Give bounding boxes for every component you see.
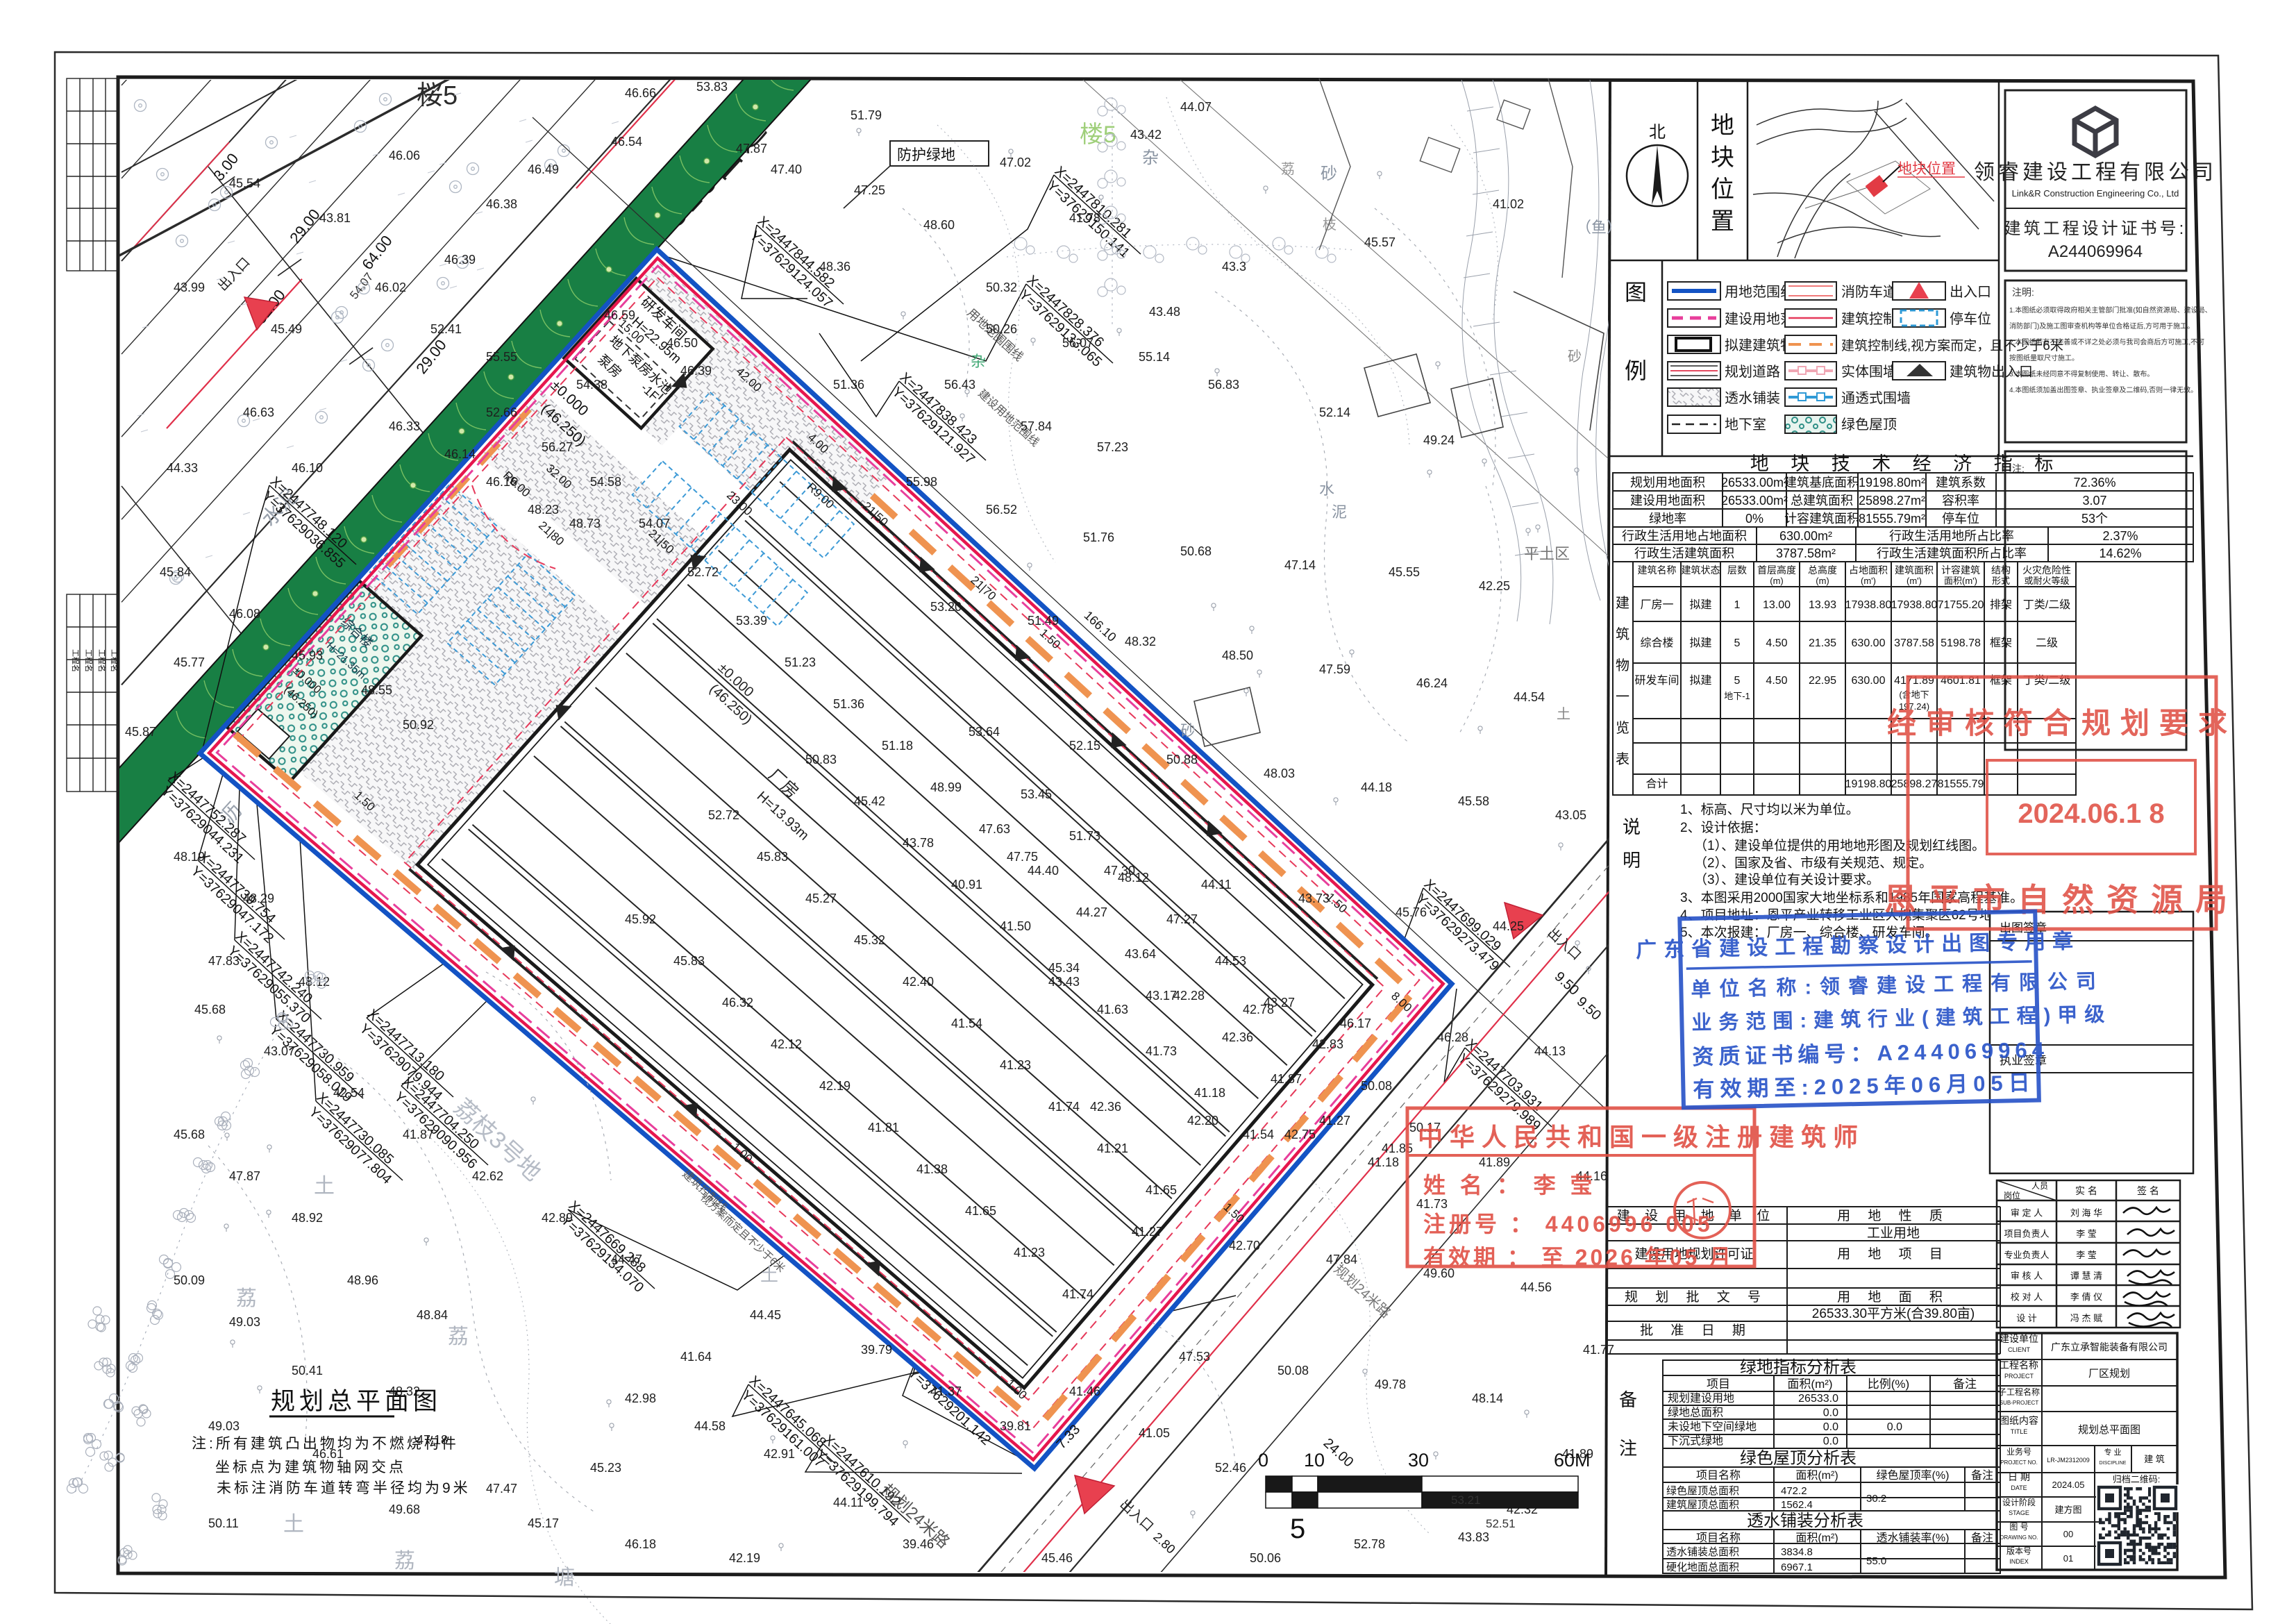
- svg-text:46.39: 46.39: [444, 253, 476, 267]
- svg-text:48.84: 48.84: [417, 1308, 448, 1322]
- svg-text:53.21: 53.21: [1451, 1493, 1481, 1507]
- svg-text:CLIENT: CLIENT: [2008, 1346, 2031, 1353]
- svg-text:41.87: 41.87: [1271, 1072, 1302, 1086]
- svg-text:面积(m²): 面积(m²): [1795, 1532, 1838, 1544]
- svg-text:43.07: 43.07: [264, 1044, 295, 1058]
- svg-text:45.92: 45.92: [625, 912, 656, 926]
- svg-text:1、标高、尺寸均以米为单位。: 1、标高、尺寸均以米为单位。: [1680, 802, 1859, 817]
- svg-text:26533.0: 26533.0: [1798, 1393, 1838, 1405]
- svg-text:绿色屋顶分析表: 绿色屋顶分析表: [1740, 1449, 1857, 1468]
- svg-text:版本号: 版本号: [2006, 1546, 2031, 1556]
- svg-text:广东立承智能装备有限公司: 广东立承智能装备有限公司: [2051, 1341, 2168, 1353]
- svg-text:消防车道: 消防车道: [1841, 284, 1897, 300]
- svg-text:46.28: 46.28: [1437, 1030, 1468, 1044]
- svg-text:55.55: 55.55: [486, 350, 517, 364]
- svg-text:42.19: 42.19: [819, 1079, 850, 1093]
- svg-text:57.84: 57.84: [1021, 419, 1052, 433]
- svg-text:45.84: 45.84: [160, 565, 191, 579]
- svg-text:枝: 枝: [1323, 217, 1336, 233]
- svg-text:10: 10: [1304, 1450, 1325, 1471]
- svg-text:计容建筑: 计容建筑: [1941, 564, 1980, 576]
- svg-text:3.07: 3.07: [2082, 494, 2106, 508]
- svg-text:未标注消防车道转弯半径均为9米: 未标注消防车道转弯半径均为9米: [217, 1480, 471, 1496]
- svg-text:56.43: 56.43: [944, 378, 975, 392]
- svg-text:14.62%: 14.62%: [2099, 546, 2141, 560]
- svg-text:47.75: 47.75: [1007, 850, 1038, 864]
- svg-text:泥: 泥: [1332, 503, 1347, 521]
- svg-text:55.98: 55.98: [906, 475, 937, 489]
- svg-text:43.99: 43.99: [174, 281, 205, 294]
- svg-text:通透式围墙: 通透式围墙: [1841, 390, 1911, 406]
- svg-text:50.11: 50.11: [208, 1516, 239, 1530]
- svg-text:4.50: 4.50: [1766, 675, 1787, 687]
- svg-text:630.00m²: 630.00m²: [1779, 529, 1832, 543]
- svg-text:42.12: 42.12: [771, 1037, 802, 1051]
- svg-text:荔: 荔: [394, 1550, 415, 1573]
- svg-text:48.12: 48.12: [1118, 871, 1149, 885]
- svg-text:43.64: 43.64: [1125, 947, 1156, 961]
- svg-text:面积(m²): 面积(m²): [1787, 1378, 1832, 1391]
- svg-text:46.39: 46.39: [680, 364, 712, 378]
- svg-text:50.41: 50.41: [292, 1364, 323, 1378]
- svg-text:48.92: 48.92: [292, 1211, 323, 1225]
- svg-text:42.28: 42.28: [1173, 989, 1205, 1003]
- svg-text:46.14: 46.14: [444, 447, 476, 461]
- svg-text:48.73: 48.73: [569, 517, 601, 530]
- svg-text:明: 明: [1623, 850, 1641, 871]
- svg-text:计容建筑面积: 计容建筑面积: [1784, 512, 1859, 526]
- svg-text:项目负责人: 项目负责人: [2004, 1229, 2049, 1239]
- svg-text:45.42: 45.42: [854, 794, 885, 808]
- svg-text:下沉式绿地: 下沉式绿地: [1668, 1435, 1723, 1448]
- svg-text:形式: 形式: [1992, 576, 2010, 586]
- svg-text:47.25: 47.25: [854, 183, 885, 197]
- svg-text:图: 图: [1625, 280, 1647, 305]
- svg-text:46.54: 46.54: [611, 135, 642, 149]
- svg-text:5198.78: 5198.78: [1941, 637, 1981, 649]
- svg-text:21.35: 21.35: [1809, 637, 1836, 649]
- svg-text:工程名称: 工程名称: [2000, 1359, 2038, 1371]
- svg-text:48.23: 48.23: [528, 503, 559, 517]
- svg-text:55.14: 55.14: [1139, 350, 1170, 364]
- svg-text:透水铺装率(%): 透水铺装率(%): [1877, 1532, 1950, 1544]
- svg-text:或耐火等级: 或耐火等级: [2024, 576, 2069, 586]
- svg-text:13.93: 13.93: [1809, 599, 1836, 611]
- svg-text:表: 表: [1616, 751, 1629, 767]
- svg-text:注: 注: [1619, 1438, 1637, 1459]
- svg-text:规 划 批 文 号: 规 划 批 文 号: [1625, 1289, 1768, 1305]
- svg-text:建筑系数: 建筑系数: [1936, 476, 1986, 489]
- svg-text:25898.27: 25898.27: [1891, 778, 1938, 790]
- svg-text:43.27: 43.27: [1264, 996, 1295, 1010]
- svg-text:44.07: 44.07: [1180, 100, 1212, 114]
- svg-text:厂房一: 厂房一: [1640, 598, 1673, 611]
- svg-text:(m'): (m'): [1861, 576, 1876, 586]
- svg-text:49.03: 49.03: [229, 1315, 260, 1329]
- svg-text:22.95: 22.95: [1809, 675, 1836, 687]
- svg-text:48.14: 48.14: [1472, 1391, 1503, 1405]
- svg-text:40.91: 40.91: [951, 878, 982, 891]
- svg-text:子工程名称: 子工程名称: [1998, 1387, 2040, 1397]
- svg-text:42.20: 42.20: [1187, 1114, 1218, 1128]
- svg-text:实体围墙: 实体围墙: [1841, 364, 1897, 380]
- svg-text:45.17: 45.17: [528, 1516, 559, 1530]
- svg-text:建设单位: 建设单位: [2000, 1333, 2038, 1344]
- svg-text:46.18: 46.18: [625, 1537, 656, 1551]
- svg-text:630.00: 630.00: [1852, 637, 1886, 649]
- svg-text:41.23: 41.23: [1000, 1058, 1031, 1072]
- svg-text:45.49: 45.49: [271, 322, 302, 336]
- svg-text:规划建设用地: 规划建设用地: [1668, 1392, 1734, 1405]
- svg-text:审 核 人: 审 核 人: [2011, 1271, 2043, 1281]
- svg-text:设 计: 设 计: [2016, 1313, 2037, 1323]
- svg-text:44.53: 44.53: [1215, 954, 1246, 968]
- svg-text:45.93: 45.93: [292, 648, 323, 662]
- svg-text:杂: 杂: [1142, 149, 1159, 167]
- svg-text:块: 块: [1711, 144, 1734, 171]
- svg-text:（鱼）: （鱼）: [1576, 219, 1622, 236]
- svg-text:01: 01: [2063, 1553, 2073, 1564]
- svg-text:荔: 荔: [448, 1325, 469, 1348]
- svg-text:41.18: 41.18: [1368, 1155, 1399, 1169]
- svg-text:44.13: 44.13: [1534, 1044, 1566, 1058]
- svg-text:46.32: 46.32: [722, 996, 753, 1010]
- svg-text:注册号 ： 4406996 005: 注册号 ： 4406996 005: [1423, 1212, 1713, 1237]
- svg-text:51.18: 51.18: [882, 739, 913, 753]
- svg-text:拟建: 拟建: [1689, 637, 1711, 649]
- svg-text:52.72: 52.72: [708, 808, 739, 822]
- svg-text:41.54: 41.54: [951, 1016, 982, 1030]
- svg-text:19198.80: 19198.80: [1845, 778, 1892, 790]
- svg-text:项目: 项目: [1707, 1378, 1730, 1391]
- svg-text:李 莹: 李 莹: [2076, 1250, 2097, 1260]
- svg-text:52.66: 52.66: [486, 405, 517, 419]
- svg-text:41.65: 41.65: [965, 1204, 996, 1218]
- svg-text:47.47: 47.47: [486, 1482, 517, 1496]
- svg-text:53.20: 53.20: [930, 600, 962, 614]
- svg-text:39.79: 39.79: [861, 1343, 892, 1357]
- svg-text:水: 水: [1319, 480, 1334, 498]
- svg-text:49.68: 49.68: [389, 1502, 420, 1516]
- svg-text:41.54: 41.54: [1243, 1128, 1274, 1141]
- svg-text:56.52: 56.52: [986, 503, 1017, 517]
- svg-text:49.03: 49.03: [208, 1419, 240, 1433]
- svg-text:46.06: 46.06: [389, 149, 420, 162]
- svg-text:6967.1: 6967.1: [1781, 1562, 1813, 1573]
- svg-text:30.2: 30.2: [1866, 1493, 1886, 1505]
- svg-text:51.76: 51.76: [1083, 530, 1114, 544]
- svg-text:45.46: 45.46: [1041, 1551, 1073, 1565]
- svg-text:13.00: 13.00: [1763, 599, 1791, 611]
- svg-text:44.40: 44.40: [1028, 864, 1059, 878]
- svg-text:防护绿地: 防护绿地: [897, 147, 955, 163]
- svg-text:50.26: 50.26: [986, 322, 1017, 336]
- svg-text:46.66: 46.66: [625, 86, 656, 100]
- svg-text:绿地总面积: 绿地总面积: [1668, 1407, 1723, 1419]
- svg-text:47.63: 47.63: [979, 822, 1010, 836]
- svg-text:工程名: 工程名: [97, 649, 107, 672]
- svg-text:日 期: 日 期: [2008, 1471, 2030, 1482]
- svg-text:领睿建设工程有限公司: 领睿建设工程有限公司: [1974, 161, 2217, 184]
- svg-text:经审核符合规划要求: 经审核符合规划要求: [1887, 707, 2237, 739]
- svg-text:备注: 备注: [1953, 1378, 1977, 1391]
- svg-text:（3）、建设单位有关设计要求。: （3）、建设单位有关设计要求。: [1694, 872, 1879, 887]
- svg-text:45.23: 45.23: [590, 1461, 621, 1475]
- svg-text:(m): (m): [1816, 576, 1829, 586]
- svg-text:45.83: 45.83: [673, 954, 705, 968]
- svg-text:46.10: 46.10: [292, 461, 323, 475]
- svg-text:绿地率: 绿地率: [1649, 512, 1686, 526]
- svg-text:48.32: 48.32: [1125, 635, 1156, 648]
- svg-text:签 名: 签 名: [2137, 1185, 2159, 1196]
- svg-text:42.36: 42.36: [1090, 1100, 1121, 1114]
- svg-text:总高度: 总高度: [1808, 564, 1837, 576]
- svg-text:46.50: 46.50: [667, 336, 698, 350]
- svg-text:地 块 技 术 经 济 指 标: 地 块 技 术 经 济 指 标: [1750, 453, 2062, 474]
- svg-text:57.23: 57.23: [1097, 440, 1128, 454]
- svg-text:备: 备: [1619, 1389, 1637, 1410]
- svg-text:45.83: 45.83: [757, 850, 788, 864]
- svg-text:44.25: 44.25: [1493, 919, 1524, 933]
- svg-text:比例(%): 比例(%): [1868, 1378, 1909, 1391]
- svg-text:合计: 合计: [1645, 778, 1668, 790]
- svg-text:81555.79: 81555.79: [1938, 778, 1984, 790]
- svg-text:45.57: 45.57: [1364, 235, 1396, 249]
- svg-text:42.89: 42.89: [542, 1211, 573, 1225]
- svg-text:44.18: 44.18: [1361, 780, 1392, 794]
- svg-text:3787.58: 3787.58: [1894, 637, 1934, 649]
- svg-text:17938.80: 17938.80: [1891, 599, 1938, 611]
- svg-text:工程名: 工程名: [71, 649, 81, 672]
- svg-text:专 业: 专 业: [2104, 1447, 2121, 1457]
- svg-text:（1）、建设单位提供的用地地形图及规划红线图。: （1）、建设单位提供的用地地形图及规划红线图。: [1694, 838, 1985, 853]
- svg-text:41.27: 41.27: [1132, 1225, 1163, 1239]
- svg-text:DISCIPLINE: DISCIPLINE: [2100, 1461, 2127, 1466]
- svg-text:42.62: 42.62: [472, 1169, 503, 1183]
- svg-text:规划总平面图: 规划总平面图: [2078, 1424, 2140, 1436]
- svg-text:杂: 杂: [971, 353, 986, 370]
- svg-text:图纸内容: 图纸内容: [2000, 1415, 2038, 1426]
- svg-text:45.55: 45.55: [1389, 565, 1420, 579]
- svg-text:DRAWING NO.: DRAWING NO.: [2000, 1534, 2038, 1541]
- svg-text:54.38: 54.38: [576, 378, 607, 392]
- svg-text:5: 5: [1290, 1514, 1305, 1544]
- svg-text:43.43: 43.43: [1048, 975, 1080, 989]
- svg-text:50.09: 50.09: [174, 1273, 205, 1287]
- svg-text:44.11: 44.11: [1201, 878, 1232, 891]
- svg-text:41.65: 41.65: [1146, 1183, 1177, 1197]
- svg-text:45.68: 45.68: [194, 1003, 226, 1016]
- svg-text:建筑基底面积: 建筑基底面积: [1784, 476, 1859, 489]
- svg-text:41.37: 41.37: [930, 1384, 962, 1398]
- svg-text:土: 土: [1557, 706, 1570, 722]
- svg-text:刘 海 华: 刘 海 华: [2070, 1207, 2102, 1218]
- svg-text:60M: 60M: [1554, 1450, 1591, 1471]
- svg-text:有效期 ： 至 2026 年05 月: 有效期 ： 至 2026 年05 月: [1423, 1245, 1734, 1270]
- svg-text:项目名称: 项目名称: [1696, 1532, 1741, 1544]
- svg-text:消防部门)及施工图审查机构等单位合格证后,方可用于施工。: 消防部门)及施工图审查机构等单位合格证后,方可用于施工。: [2009, 321, 2194, 330]
- svg-text:50.08: 50.08: [1361, 1079, 1392, 1093]
- svg-text:41.64: 41.64: [680, 1350, 712, 1364]
- svg-text:地下-1: 地下-1: [1724, 691, 1750, 701]
- svg-text:SUB-PROJECT: SUB-PROJECT: [2000, 1400, 2039, 1406]
- svg-text:26533.00m²: 26533.00m²: [1721, 494, 1788, 508]
- svg-text:54.58: 54.58: [590, 475, 621, 489]
- svg-text:设计阶段: 设计阶段: [2002, 1497, 2036, 1507]
- svg-text:47.87: 47.87: [229, 1169, 260, 1183]
- svg-text:45.34: 45.34: [1048, 961, 1080, 975]
- svg-text:56.83: 56.83: [1208, 378, 1239, 392]
- svg-text:48.19: 48.19: [174, 850, 205, 864]
- svg-text:47.27: 47.27: [1166, 912, 1198, 926]
- svg-text:注明:: 注明:: [2012, 287, 2034, 298]
- svg-text:地: 地: [1711, 112, 1734, 139]
- svg-text:谭 慧 清: 谭 慧 清: [2070, 1271, 2102, 1281]
- svg-text:框架: 框架: [1990, 637, 2012, 649]
- svg-text:5: 5: [1734, 637, 1741, 649]
- svg-text:50.06: 50.06: [1250, 1551, 1281, 1565]
- svg-text:例: 例: [1625, 358, 1647, 383]
- svg-text:火灾危险性: 火灾危险性: [2022, 564, 2071, 576]
- svg-text:46.49: 46.49: [528, 162, 559, 176]
- svg-text:塘: 塘: [554, 1566, 575, 1589]
- svg-text:43.78: 43.78: [903, 836, 934, 850]
- svg-text:A244069964: A244069964: [2048, 242, 2143, 261]
- svg-text:50.83: 50.83: [805, 753, 837, 767]
- svg-text:行政生活用地占地面积: 行政生活用地占地面积: [1622, 529, 1747, 543]
- svg-text:41.02: 41.02: [1493, 197, 1524, 211]
- svg-text:砂: 砂: [1568, 349, 1582, 365]
- svg-text:北: 北: [1649, 123, 1666, 142]
- svg-text:51.79: 51.79: [850, 108, 882, 122]
- svg-text:52.41: 52.41: [430, 322, 462, 336]
- svg-text:41.73: 41.73: [1416, 1197, 1448, 1211]
- svg-text:25898.27m²: 25898.27m²: [1859, 494, 1925, 508]
- svg-text:43.48: 43.48: [1149, 305, 1180, 319]
- svg-text:冯 杰 赋: 冯 杰 赋: [2070, 1313, 2102, 1323]
- svg-text:建筑工程设计证书号:: 建筑工程设计证书号:: [2004, 219, 2187, 238]
- svg-text:面积(m²): 面积(m²): [1795, 1469, 1838, 1482]
- svg-text:43.3: 43.3: [1222, 260, 1246, 274]
- svg-text:46.63: 46.63: [243, 405, 274, 419]
- svg-text:建方图: 建方图: [2054, 1505, 2081, 1515]
- svg-text:LR-JM2312009: LR-JM2312009: [2047, 1457, 2090, 1464]
- svg-text:绿色屋顶: 绿色屋顶: [1841, 417, 1897, 433]
- svg-text:建筑状态: 建筑状态: [1682, 564, 1720, 576]
- svg-text:归档二维码:: 归档二维码:: [2113, 1474, 2161, 1484]
- svg-text:44.33: 44.33: [167, 461, 198, 475]
- svg-text:专业负责人: 专业负责人: [2004, 1250, 2049, 1260]
- svg-text:44.11: 44.11: [833, 1496, 864, 1509]
- svg-text:0.0: 0.0: [1887, 1421, 1902, 1433]
- svg-text:透水铺装分析表: 透水铺装分析表: [1747, 1512, 1863, 1530]
- svg-text:行政生活用地所占比率: 行政生活用地所占比率: [1889, 529, 2014, 543]
- svg-text:硬化地面总面积: 硬化地面总面积: [1666, 1562, 1739, 1573]
- svg-text:建 筑: 建 筑: [2144, 1454, 2165, 1464]
- svg-text:39.46: 39.46: [903, 1537, 934, 1551]
- svg-text:综合楼: 综合楼: [1640, 637, 1673, 649]
- svg-text:53.64: 53.64: [969, 725, 1000, 739]
- svg-text:2、设计依据：: 2、设计依据：: [1680, 820, 1767, 835]
- svg-text:首层高度: 首层高度: [1757, 564, 1796, 576]
- svg-text:48.29: 48.29: [243, 891, 274, 905]
- svg-text:41.21: 41.21: [1097, 1141, 1128, 1155]
- svg-text:砂: 砂: [1321, 165, 1337, 183]
- svg-text:物: 物: [1616, 658, 1629, 673]
- svg-text:50.32: 50.32: [986, 281, 1017, 294]
- svg-text:绿地指标分析表: 绿地指标分析表: [1740, 1358, 1857, 1377]
- svg-text:53.83: 53.83: [696, 80, 728, 94]
- svg-text:00: 00: [2063, 1529, 2073, 1539]
- svg-text:44.27: 44.27: [1076, 905, 1107, 919]
- svg-text:李 莹: 李 莹: [2076, 1229, 2097, 1239]
- svg-text:桜5: 桜5: [417, 81, 458, 110]
- svg-text:43.17: 43.17: [1146, 989, 1177, 1003]
- svg-text:46.17: 46.17: [1340, 1016, 1371, 1030]
- svg-text:50.88: 50.88: [1166, 753, 1198, 767]
- svg-text:排架: 排架: [1990, 598, 2012, 611]
- svg-text:42.98: 42.98: [625, 1391, 656, 1405]
- svg-text:置: 置: [1711, 208, 1734, 235]
- svg-text:容积率: 容积率: [1942, 494, 1979, 508]
- svg-text:透水铺装总面积: 透水铺装总面积: [1666, 1546, 1739, 1558]
- svg-text:47.59: 47.59: [1319, 662, 1350, 676]
- svg-text:DATE: DATE: [2011, 1484, 2027, 1491]
- svg-text:48.36: 48.36: [819, 260, 850, 274]
- svg-text:规划总平面图: 规划总平面图: [271, 1388, 442, 1415]
- svg-text:41.74: 41.74: [1048, 1100, 1080, 1114]
- svg-text:位: 位: [1711, 176, 1734, 203]
- svg-text:52.14: 52.14: [1319, 405, 1350, 419]
- svg-text:41.73: 41.73: [1146, 1044, 1177, 1058]
- svg-text:45.32: 45.32: [854, 933, 885, 947]
- svg-text:INDEX: INDEX: [2009, 1558, 2029, 1565]
- svg-text:楼5: 楼5: [1080, 122, 1116, 148]
- svg-text:工程名: 工程名: [84, 649, 94, 672]
- svg-text:面积(m'): 面积(m'): [1944, 576, 1977, 586]
- svg-text:层数: 层数: [1727, 564, 1747, 576]
- svg-text:建筑屋顶总面积: 建筑屋顶总面积: [1666, 1499, 1739, 1511]
- svg-text:0.0: 0.0: [1823, 1436, 1838, 1448]
- svg-text:53.45: 53.45: [1021, 787, 1052, 801]
- svg-text:建筑面积: 建筑面积: [1895, 564, 1934, 576]
- svg-text:停车位: 停车位: [1942, 512, 1979, 526]
- svg-text:建筑物出入口: 建筑物出入口: [1950, 364, 2033, 380]
- svg-text:52.51: 52.51: [1486, 1517, 1516, 1530]
- svg-text:41.38: 41.38: [916, 1162, 948, 1176]
- svg-text:0.0: 0.0: [1823, 1407, 1838, 1419]
- svg-text:52.72: 52.72: [687, 565, 719, 579]
- svg-text:51.36: 51.36: [833, 378, 864, 392]
- svg-text:STAGE: STAGE: [2009, 1509, 2029, 1516]
- svg-text:19198.80m²: 19198.80m²: [1859, 476, 1925, 489]
- svg-text:土: 土: [283, 1513, 304, 1536]
- svg-text:26533.30平方米(合39.80亩): 26533.30平方米(合39.80亩): [1812, 1306, 1975, 1321]
- svg-text:实 名: 实 名: [2075, 1185, 2097, 1196]
- svg-text:土: 土: [314, 1175, 335, 1198]
- svg-text:41.63: 41.63: [1097, 1003, 1128, 1016]
- svg-text:41.46: 41.46: [1069, 1384, 1100, 1398]
- svg-text:中华人民共和国一级注册建筑师: 中华人民共和国一级注册建筑师: [1418, 1123, 1865, 1151]
- svg-text:630.00: 630.00: [1852, 675, 1886, 687]
- svg-text:批 准 日 期: 批 准 日 期: [1640, 1323, 1752, 1338]
- svg-text:5: 5: [1734, 675, 1741, 687]
- svg-text:43.05: 43.05: [1555, 808, 1586, 822]
- svg-text:42.54: 42.54: [333, 1086, 364, 1100]
- svg-text:44.56: 44.56: [1520, 1280, 1552, 1294]
- svg-text:52.46: 52.46: [1215, 1461, 1246, 1475]
- svg-text:47.84: 47.84: [1326, 1253, 1357, 1266]
